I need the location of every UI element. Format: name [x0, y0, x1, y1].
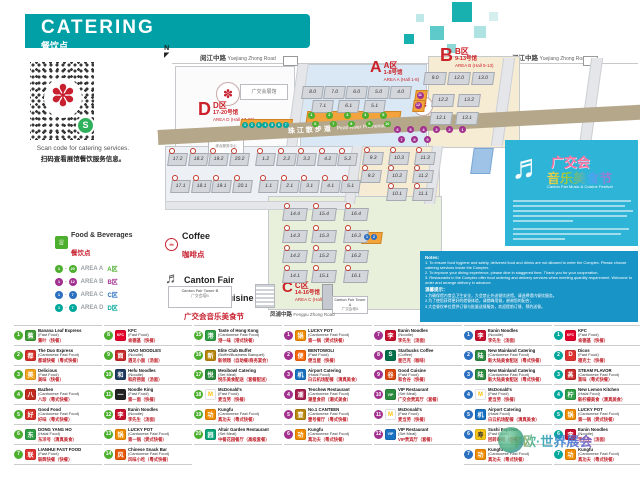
- entry-text: Kungfu(Cantonese Fast Food)真功夫（粤式快餐）: [218, 407, 259, 422]
- entry-number-badge: 9: [104, 351, 113, 360]
- restaurant-name-cn: 新大陆美食配送（粤式快餐）: [488, 377, 544, 382]
- hall-block: 19.2: [208, 153, 229, 166]
- restaurant-logo-icon: 谷: [385, 369, 396, 380]
- hall-marker-ring: [284, 265, 290, 271]
- hall-block: 2.2: [276, 153, 297, 166]
- restaurant-name-cn: 新领翔（自助餐/商务宴会）: [218, 358, 271, 363]
- legend-area-label: AREA A: [81, 266, 104, 272]
- hall-marker-ring: [260, 175, 266, 181]
- hall-marker-ring: [313, 245, 319, 251]
- entry-number-badge: 1: [464, 331, 473, 340]
- area-marker: 1: [242, 122, 248, 128]
- hall-marker-ring: [388, 165, 394, 171]
- entry-text: Bazhen(Cantonese Fast Food)八珍（粤式快餐）: [38, 387, 79, 402]
- legend-circle: 7: [69, 291, 77, 299]
- qr-caption-en: Scan code for catering services.: [8, 145, 158, 152]
- hall-marker-ring: [281, 175, 287, 181]
- hall-block: 18.2: [188, 153, 209, 166]
- entry-number-badge: 10: [104, 370, 113, 379]
- hall-marker-ring: [172, 175, 178, 181]
- restaurant-entry: 3美Delicious(Fast Food)美味（快餐）: [14, 366, 102, 386]
- entry-number-badge: 1: [554, 331, 563, 340]
- restaurant-logo-icon: 港: [205, 330, 216, 341]
- restaurant-entry: 2陆New Mainland Catering(Cantonese Fast F…: [464, 346, 552, 366]
- restaurant-name-cn: 好味（粤式快餐）: [38, 417, 79, 422]
- festival-fineprint-line: [513, 210, 633, 212]
- notes-items-en: 1. To ensure food hygiene and safety, de…: [425, 260, 633, 285]
- festival-fineprint-line: [513, 205, 625, 207]
- legend-food-title: Food & Beverages: [71, 232, 132, 239]
- festival-fineprint-line: [513, 228, 629, 230]
- restaurant-logo-icon: 李: [475, 330, 486, 341]
- restaurant-entry: 11一Noodle King(Fast Food)第一面（快餐）: [104, 385, 192, 405]
- hall-block: 10.2: [386, 170, 408, 183]
- entry-number-badge: 5: [464, 410, 473, 419]
- north-arrow-icon: N◤: [164, 45, 169, 59]
- area-marker: 2: [326, 112, 333, 119]
- road-label-top-right: 阅江中路 Yuejiang Zhong Road: [512, 52, 588, 62]
- restaurant-logo-icon: 锅: [565, 409, 576, 420]
- restaurant-logo-icon: 陆: [475, 369, 486, 380]
- hall-marker-ring: [345, 265, 351, 271]
- legend-food: ♕ Food & Beverages 餐饮点 1-20AREA AA区1-12A…: [55, 224, 175, 312]
- restaurant-entry: 4柠New Lemon Kitchen(Halal Food)新柠檬美食（清真美…: [554, 385, 640, 405]
- restaurant-entry: 10VIPVIP Restaurant(Set Meal)广交会贵宾厅（套餐）: [374, 385, 462, 405]
- entry-text: Eanin Noodles(Noodle)李先生（汤面）: [128, 407, 158, 422]
- hall-block: 6.0: [345, 86, 368, 99]
- hall-marker-ring: [390, 147, 396, 153]
- restaurant-logo-icon: 蕉: [25, 330, 36, 341]
- deco-square: [452, 2, 472, 22]
- restaurant-category: (Cantonese Fast Food): [128, 452, 171, 457]
- entry-text: No.1 CANTEEN(Cantonese Fast Food)壹号餐厅（粤式…: [308, 407, 351, 422]
- restaurant-name-cn: 麦当劳（快餐）: [488, 397, 518, 402]
- legend-coffee-label: Coffee: [182, 231, 210, 241]
- restaurant-entry: 2都The Duo Express(Cantonese Fast Food)都城…: [14, 346, 102, 366]
- restaurant-name-cn: 第一锅（煲式快餐）: [128, 437, 169, 442]
- hall-block: 13.2: [457, 94, 481, 107]
- entry-number-badge: 6: [464, 430, 473, 439]
- deco-square: [416, 14, 424, 22]
- road-label-bottom: 凤浦中路 Fengpu Zhong Road: [270, 310, 335, 318]
- entry-number-badge: 1: [284, 331, 293, 340]
- restaurant-name-cn: 李先生（汤面）: [488, 338, 518, 343]
- note-item-cn: 3.大会餐饮单位提供订餐与批量送餐服务，欢迎提前订餐、预约送餐。: [425, 304, 633, 309]
- directory-column: 1蕉Banana Leaf Express(Fast Food)蕉叶（快餐）2都…: [14, 325, 102, 465]
- restaurant-name-cn: 港一味（港式快餐）: [218, 338, 259, 343]
- restaurant-name-cn: 白云机场配餐（清真美食）: [308, 377, 360, 382]
- hall-block: 4.2: [317, 153, 338, 166]
- legend-food-title-cn: 餐饮点: [71, 250, 91, 257]
- restaurant-logo-icon: S: [385, 350, 396, 361]
- hall-marker-ring: [190, 148, 196, 154]
- legend-dash: -: [65, 266, 67, 272]
- area-marker: 2: [249, 122, 255, 128]
- restaurant-logo-icon: 功: [205, 409, 216, 420]
- entry-number-badge: 7: [464, 450, 473, 459]
- hall-block: 16.4: [343, 208, 369, 221]
- entry-number-badge: 6: [14, 430, 23, 439]
- area-label-b: B B区 9-13号馆 AREA B (Hall 9-13): [440, 46, 494, 68]
- hall-marker-ring: [234, 175, 240, 181]
- hall-block: 12.2: [431, 94, 455, 107]
- festival-fineprint-line: [513, 233, 621, 235]
- hall-block: 12.0: [447, 72, 471, 85]
- entry-text: Starbucks Coffee(Coffee)星巴克（咖啡）: [398, 348, 433, 363]
- entry-number-badge: 4: [14, 390, 23, 399]
- entry-number-badge: 12: [104, 410, 113, 419]
- restaurant-name-cn: 真功夫（粤式快餐）: [578, 457, 619, 462]
- restaurant-name-cn: 和府捞面（汤面）: [128, 377, 162, 382]
- directory-column: 7李Eanin Noodles(Noodle)李先生（汤面）8SStarbuck…: [374, 325, 462, 445]
- restaurant-entry: 13锅LUCKY POT(Cantonese Fast Food)第一锅（煲式快…: [104, 425, 192, 445]
- entry-number-badge: 4: [554, 390, 563, 399]
- legend-dash: -: [65, 305, 67, 311]
- hall-block: 5.2: [337, 153, 358, 166]
- entry-number-badge: 5: [14, 410, 23, 419]
- hall-block: 15.2: [311, 250, 337, 263]
- restaurant-name-cn: 第一锅（煲式快餐）: [578, 417, 619, 422]
- restaurant-entry: 5好Good Food(Cantonese Fast Food)好味（粤式快餐）: [14, 405, 102, 425]
- area-marker: 9: [424, 136, 431, 143]
- restaurant-entry: 17悦Mexibowl Catering(Set Meal)悦乐美食配送（套餐配…: [194, 366, 282, 386]
- entry-number-badge: 3: [464, 370, 473, 379]
- entry-text: Airport Catering(Halal Food)白云机场配餐（清真美食）: [308, 368, 360, 383]
- entry-text: New Lemon Kitchen(Halal Food)新柠檬美食（清真美食）: [578, 387, 625, 402]
- wechat-badge-icon: S: [76, 116, 95, 135]
- entry-number-badge: 5: [554, 410, 563, 419]
- hall-marker-ring: [416, 147, 422, 153]
- area-marker: 8: [411, 136, 418, 143]
- restaurant-logo-icon: 一: [115, 389, 126, 400]
- restaurant-name-cn: 都城快餐（粤式快餐）: [38, 358, 81, 363]
- hall-block: 9.2: [360, 170, 382, 183]
- entry-number-badge: 8: [104, 331, 113, 340]
- hall-block: 15.1: [311, 270, 337, 283]
- legend-area-label: AREA C: [81, 292, 104, 298]
- legend-circle: 1: [55, 304, 63, 312]
- festival-fineprint-line: [513, 215, 627, 217]
- area-marker: 6: [394, 126, 401, 133]
- hall-block: 9.0: [423, 72, 447, 85]
- restaurant-logo-icon: KFC: [565, 330, 576, 341]
- restaurant-name-cn: 潮皇食府（潮式美食）: [308, 397, 351, 402]
- area-label-a: A A区 1-8号馆 AREA A (Hall 1-8): [370, 60, 419, 82]
- road-label-top-left: 阅江中路 Yuejiang Zhong Road: [200, 52, 276, 62]
- hall-block: 14.2: [282, 250, 308, 263]
- restaurant-logo-icon: 和: [115, 369, 126, 380]
- restaurant-entry: 15港Taste of Hong Kong(Cantonese Fast Foo…: [194, 326, 282, 346]
- entry-text: McDonald's(Fast Food)麦当劳（快餐）: [218, 387, 248, 402]
- entry-text: VIP Restaurant(Set Meal)VIP贵宾厅（套餐）: [398, 427, 435, 442]
- restaurant-name-cn: 风味小吃（粤式快餐）: [128, 457, 171, 462]
- restaurant-name-cn: 白云机场配餐（清真美食）: [488, 417, 540, 422]
- restaurant-logo-icon: 美: [25, 369, 36, 380]
- restaurant-entry: 1锅LUCKY POT(Cantonese Fast Food)第一锅（煲式快餐…: [284, 326, 372, 346]
- hall-block: 14.3: [282, 230, 308, 243]
- restaurant-logo-icon: 功: [295, 429, 306, 440]
- hall-block: 14.1: [282, 270, 308, 283]
- legend-area-cn: B区: [107, 277, 117, 286]
- restaurant-entry: 4潮Teochew Restaurant(Cantonese Fast Food…: [284, 385, 372, 405]
- hall-marker-ring: [313, 225, 319, 231]
- hall-block: 1.1: [258, 180, 279, 193]
- music-note-icon: ♬: [165, 270, 180, 287]
- hall-marker-ring: [257, 148, 263, 154]
- restaurant-name-cn: 德克士（快餐）: [578, 358, 608, 363]
- restaurant-logo-icon: 面: [115, 350, 126, 361]
- legend-area-label: AREA D: [81, 305, 104, 311]
- restaurant-entry: 1KFCKFC(Fast Food)肯德基（快餐）: [554, 326, 640, 346]
- hall-block: 19.1: [211, 180, 232, 193]
- hall-marker-ring: [284, 203, 290, 209]
- hall-block: 2.1: [279, 180, 300, 193]
- restaurant-name-cn: VIP贵宾厅（套餐）: [398, 437, 435, 442]
- entry-number-badge: 17: [194, 370, 203, 379]
- entry-number-badge: 14: [104, 450, 113, 459]
- hall-block: 16.2: [343, 250, 369, 263]
- restaurant-entry: 10和Hefu Noodles(Noodle)和府捞面（汤面）: [104, 366, 192, 386]
- hall-marker-ring: [414, 183, 420, 189]
- restaurant-entry: 3机Airport Catering(Halal Food)白云机场配餐（清真美…: [284, 366, 372, 386]
- hall-marker-ring: [345, 203, 351, 209]
- restaurant-entry: 14风Chinese Snack Bar(Cantonese Fast Food…: [104, 445, 192, 465]
- treble-clef-icon: ♬: [511, 148, 545, 187]
- restaurant-logo-icon: 机: [295, 369, 306, 380]
- hall-block: 7.0: [323, 86, 346, 99]
- restaurant-logo-icon: 风: [115, 449, 126, 460]
- directory-column: 15港Taste of Hong Kong(Cantonese Fast Foo…: [194, 325, 282, 445]
- legend-circle: 12: [69, 278, 77, 286]
- hall-marker-ring: [388, 183, 394, 189]
- entry-text: Delicious(Fast Food)美味（快餐）: [38, 368, 64, 383]
- area-marker: 4: [362, 112, 369, 119]
- hall-block: 18.1: [191, 180, 212, 193]
- area-marker: 2: [371, 234, 377, 240]
- entry-text: KFC(Fast Food)肯德基（快餐）: [578, 328, 608, 343]
- entry-number-badge: 3: [14, 370, 23, 379]
- note-item-en: 3. Restaurants in the Complex offer food…: [425, 275, 633, 285]
- restaurant-entry: 1李Eanin Noodles(Noodle)李先生（汤面）: [464, 326, 552, 346]
- entry-number-badge: 4: [464, 390, 473, 399]
- legend-dash: -: [65, 292, 67, 298]
- entry-text: LIANHUI FAST FOOD(Fast Food)联辉快餐（快餐）: [38, 447, 81, 462]
- hall-block: 11.1: [412, 188, 434, 201]
- restaurant-name-cn: 蕉叶（快餐）: [38, 338, 81, 343]
- legend-circle: 7: [69, 304, 77, 312]
- restaurant-logo-icon: M: [385, 409, 396, 420]
- entry-number-badge: 9: [374, 370, 383, 379]
- legend-area-cn: C区: [107, 290, 117, 299]
- restaurant-logo-icon: 潮: [295, 389, 306, 400]
- restaurant-name-cn: 麦当劳（快餐）: [398, 417, 428, 422]
- hall-block: 12.1: [429, 112, 453, 125]
- watermark: 中欧·世界展会: [498, 427, 592, 453]
- entry-number-badge: 6: [284, 430, 293, 439]
- hall-block: 13.0: [471, 72, 495, 85]
- area-marker: 12: [415, 102, 422, 109]
- entry-number-badge: 7: [374, 331, 383, 340]
- restaurant-name-cn: 广交会贵宾厅（套餐）: [398, 397, 441, 402]
- hall-block: 15.3: [311, 230, 337, 243]
- gate-box: [283, 56, 298, 66]
- entry-number-badge: 4: [284, 390, 293, 399]
- legend-row: 1-7AREA CC区: [55, 290, 175, 299]
- festival-fineprint-line: [513, 238, 565, 240]
- restaurant-logo-icon: 八: [25, 389, 36, 400]
- restaurant-logo-icon: 悦: [205, 369, 216, 380]
- area-marker: 7: [283, 122, 289, 128]
- restaurant-name-cn: 中餐花园餐厅（高级套餐）: [218, 437, 270, 442]
- area-marker: 10: [384, 121, 391, 128]
- hall-block: 11.3: [414, 152, 436, 165]
- area-marker: 5: [380, 112, 387, 119]
- legend-festival-cn: 广交会音乐美食节: [184, 312, 244, 321]
- entry-text: DONG YANG HO(Halal Food)东洋号（清真美食）: [38, 427, 77, 442]
- legend-circle: 20: [69, 265, 77, 273]
- restaurant-entry: 9谷Good Cuisine(Fast Food)和合谷（快餐）: [374, 366, 462, 386]
- entry-text: New Mainland Catering(Cantonese Fast Foo…: [488, 368, 544, 383]
- entry-text: STEAM FLAVOR(Cantonese Fast Food)蒸味（粤式快餐…: [578, 368, 619, 383]
- entry-number-badge: 11: [374, 410, 383, 419]
- restaurant-entry: 2DDicos(Fast Food)德克士（快餐）: [554, 346, 640, 366]
- hall-block: 7.1: [311, 100, 334, 113]
- festival-subtitle: Canton Fair Music & Cuisine Festival: [547, 184, 613, 189]
- entry-text: New Mainland Catering(Cantonese Fast Foo…: [488, 348, 544, 363]
- restaurant-entry: 5机Airport Catering(Halal Food)白云机场配餐（清真美…: [464, 405, 552, 425]
- entry-text: Eanin Noodles(Noodle)李先生（汤面）: [488, 328, 518, 343]
- legend-rows: 1-20AREA AA区1-12AREA BB区1-7AREA CC区1-7AR…: [55, 264, 175, 312]
- restaurant-entry: 8SStarbucks Coffee(Coffee)星巴克（咖啡）: [374, 346, 462, 366]
- restaurant-entry: 12李Eanin Noodles(Noodle)李先生（汤面）: [104, 405, 192, 425]
- entry-text: XIAO NOODLES(Noodle)遇见小面（汤面）: [128, 348, 162, 363]
- restaurant-name-cn: 肯德基（快餐）: [578, 338, 608, 343]
- entry-text: Good Food(Cantonese Fast Food)好味（粤式快餐）: [38, 407, 79, 422]
- festival-banner: ♬ 广交会 音乐美食节 Canton Fair Music & Cuisine …: [505, 140, 638, 246]
- restaurant-logo-icon: M: [475, 389, 486, 400]
- restaurant-logo-icon: 寿: [475, 429, 486, 440]
- entry-number-badge: 15: [194, 331, 203, 340]
- entry-text: McDonald's(Fast Food)麦当劳（快餐）: [398, 407, 428, 422]
- entry-text: Eanin Noodles(Noodle)李先生（汤面）: [398, 328, 428, 343]
- restaurant-entry: 5壹No.1 CANTEEN(Cantonese Fast Food)壹号餐厅（…: [284, 405, 372, 425]
- entry-number-badge: 8: [374, 351, 383, 360]
- restaurant-logo-icon: 联: [25, 449, 36, 460]
- entry-number-badge: 12: [374, 430, 383, 439]
- entry-text: Banana Leaf Express(Fast Food)蕉叶（快餐）: [38, 328, 81, 343]
- entry-text: Noodle King(Fast Food)第一面（快餐）: [128, 387, 158, 402]
- hall-marker-ring: [193, 175, 199, 181]
- restaurant-logo-icon: D: [565, 350, 576, 361]
- header-banner: CATERING 餐饮点: [25, 14, 310, 48]
- hall-marker-ring: [345, 225, 351, 231]
- hall-block: 1.2: [255, 153, 276, 166]
- restaurant-name-cn: 八珍（粤式快餐）: [38, 397, 79, 402]
- directory-column: 1锅LUCKY POT(Cantonese Fast Food)第一锅（煲式快餐…: [284, 325, 372, 445]
- restaurant-entry: 11MMcDonald's(Fast Food)麦当劳（快餐）: [374, 405, 462, 425]
- hall-marker-ring: [313, 265, 319, 271]
- restaurant-logo-icon: 便: [295, 350, 306, 361]
- area-marker: 6: [312, 121, 319, 128]
- area-marker: 6: [276, 122, 282, 128]
- restaurant-entry: 7联LIANHUI FAST FOOD(Fast Food)联辉快餐（快餐）: [14, 445, 102, 465]
- entry-number-badge: 2: [284, 351, 293, 360]
- restaurant-logo-icon: 蒸: [565, 369, 576, 380]
- restaurant-entry: 3蒸STEAM FLAVOR(Cantonese Fast Food)蒸味（粤式…: [554, 366, 640, 386]
- hall-marker-ring: [345, 245, 351, 251]
- restaurant-logo-icon: 柠: [565, 389, 576, 400]
- restaurant-name-cn: 美味（快餐）: [38, 377, 64, 382]
- area-marker: 3: [433, 126, 440, 133]
- entry-number-badge: 5: [284, 410, 293, 419]
- entry-number-badge: 2: [554, 351, 563, 360]
- restaurant-entry: 18MMcDonald's(Fast Food)麦当劳（快餐）: [194, 385, 282, 405]
- deco-square: [404, 34, 414, 44]
- note-item-en: 1. To ensure food hygiene and safety, de…: [425, 260, 633, 270]
- area-marker: 2: [446, 126, 453, 133]
- restaurant-logo-icon: 好: [25, 409, 36, 420]
- restaurant-logo-icon: 锅: [115, 429, 126, 440]
- festival-fineprint-line: [513, 200, 631, 202]
- hall-block: 16.1: [343, 270, 369, 283]
- entry-text: Altair Garden Restaurant(Set Meal)中餐花园餐厅…: [218, 427, 270, 442]
- hall-block: 10.3: [388, 152, 410, 165]
- restaurant-logo-icon: M: [205, 389, 216, 400]
- restaurant-logo-icon: 锅: [295, 330, 306, 341]
- area-marker: 1: [459, 126, 466, 133]
- entry-text: BENTOWOLI(Fast Food)便当屋（快餐）: [308, 348, 338, 363]
- restaurant-entry: 6东DONG YANG HO(Halal Food)东洋号（清真美食）: [14, 425, 102, 445]
- entry-text: LUCKY POT(Cantonese Fast Food)第一锅（煲式快餐）: [128, 427, 169, 442]
- legend-row: 1-12AREA BB区: [55, 277, 175, 286]
- restaurant-name-cn: 便当屋（快餐）: [308, 358, 338, 363]
- restaurant-name-cn: 真功夫（粤式快餐）: [488, 457, 529, 462]
- restaurant-name-cn: 壹号餐厅（粤式快餐）: [308, 417, 351, 422]
- hall-marker-ring: [414, 165, 420, 171]
- restaurant-name-cn: 麦当劳（快餐）: [218, 397, 248, 402]
- entry-text: Mexibowl Catering(Set Meal)悦乐美食配送（套餐配送）: [218, 368, 270, 383]
- entry-text: LUCKY POT(Cantonese Fast Food)第一锅（煲式快餐）: [308, 328, 349, 343]
- area-marker: 3: [344, 112, 351, 119]
- entry-number-badge: 19: [194, 410, 203, 419]
- legend-coffee-cn: 咖啡点: [182, 250, 205, 259]
- restaurant-name-cn: 悦乐美食配送（套餐配送）: [218, 377, 270, 382]
- area-marker: 8: [348, 121, 355, 128]
- directory-column: 8KFCKFC(Fast Food)肯德基（快餐）9面XIAO NOODLES(…: [104, 325, 192, 465]
- entry-text: Kungfu(Cantonese Fast Food)真功夫（粤式快餐）: [308, 427, 349, 442]
- restaurant-logo-icon: 李: [115, 409, 126, 420]
- hall-marker-ring: [169, 148, 175, 154]
- restaurant-name-cn: 李先生（汤面）: [398, 338, 428, 343]
- restaurant-name-cn: 和合谷（快餐）: [398, 377, 428, 382]
- hall-block: 20.1: [232, 180, 253, 193]
- legend-dash: -: [65, 279, 67, 285]
- entry-text: The Duo Express(Cantonese Fast Food)都城快餐…: [38, 348, 81, 363]
- hall-marker-ring: [313, 203, 319, 209]
- hall-marker-ring: [364, 147, 370, 153]
- legend-row: 1-20AREA AA区: [55, 264, 175, 273]
- hall-block: 6.1: [337, 100, 360, 113]
- entry-text: Airport Catering(Halal Food)白云机场配餐（清真美食）: [488, 407, 540, 422]
- area-marker: 1: [308, 112, 315, 119]
- restaurant-logo-icon: 壹: [295, 409, 306, 420]
- restaurant-entry: 3陆New Mainland Catering(Cantonese Fast F…: [464, 366, 552, 386]
- restaurant-entry: 8KFCKFC(Fast Food)肯德基（快餐）: [104, 326, 192, 346]
- restaurant-logo-icon: 陆: [475, 350, 486, 361]
- restaurant-entry: 1蕉Banana Leaf Express(Fast Food)蕉叶（快餐）: [14, 326, 102, 346]
- entry-number-badge: 7: [14, 450, 23, 459]
- restaurant-name-cn: 李先生（汤面）: [128, 417, 158, 422]
